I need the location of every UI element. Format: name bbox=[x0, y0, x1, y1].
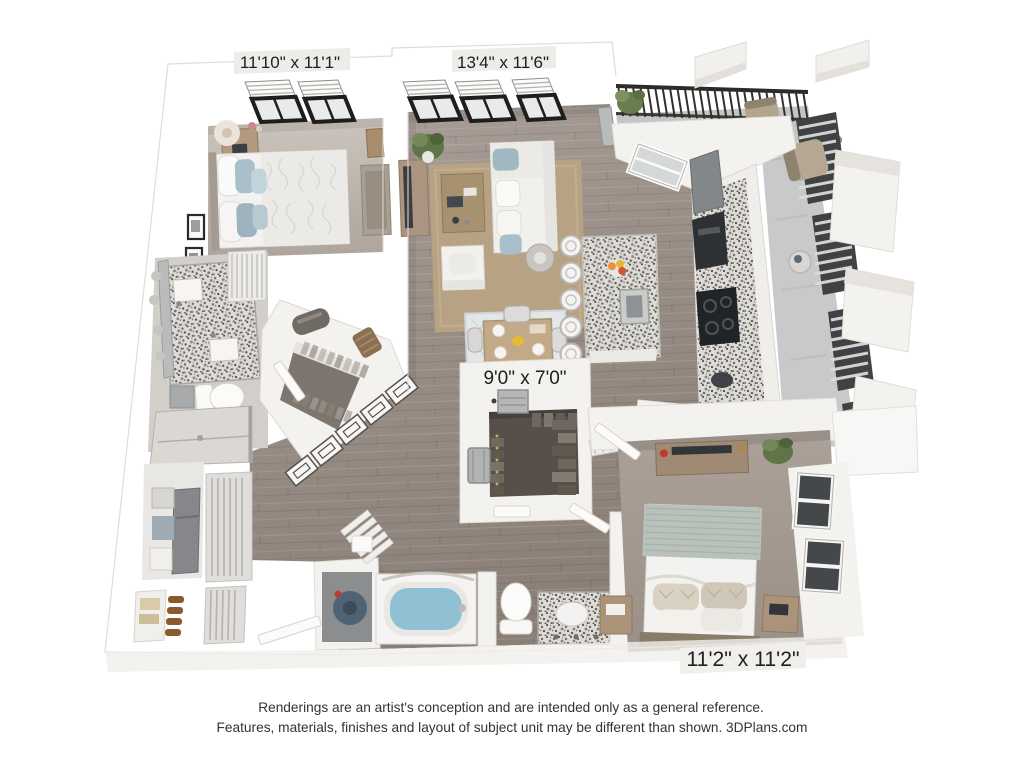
svg-text:11'2" x 11'2": 11'2" x 11'2" bbox=[686, 648, 799, 671]
svg-text:Renderings are an artist's con: Renderings are an artist's conception an… bbox=[258, 700, 764, 715]
svg-text:Features, materials, finishes: Features, materials, finishes and layout… bbox=[217, 720, 808, 735]
svg-text:11'10" x 11'1": 11'10" x 11'1" bbox=[240, 53, 340, 72]
svg-text:9'0" x 7'0": 9'0" x 7'0" bbox=[483, 368, 566, 389]
svg-text:13'4" x 11'6": 13'4" x 11'6" bbox=[457, 53, 549, 72]
